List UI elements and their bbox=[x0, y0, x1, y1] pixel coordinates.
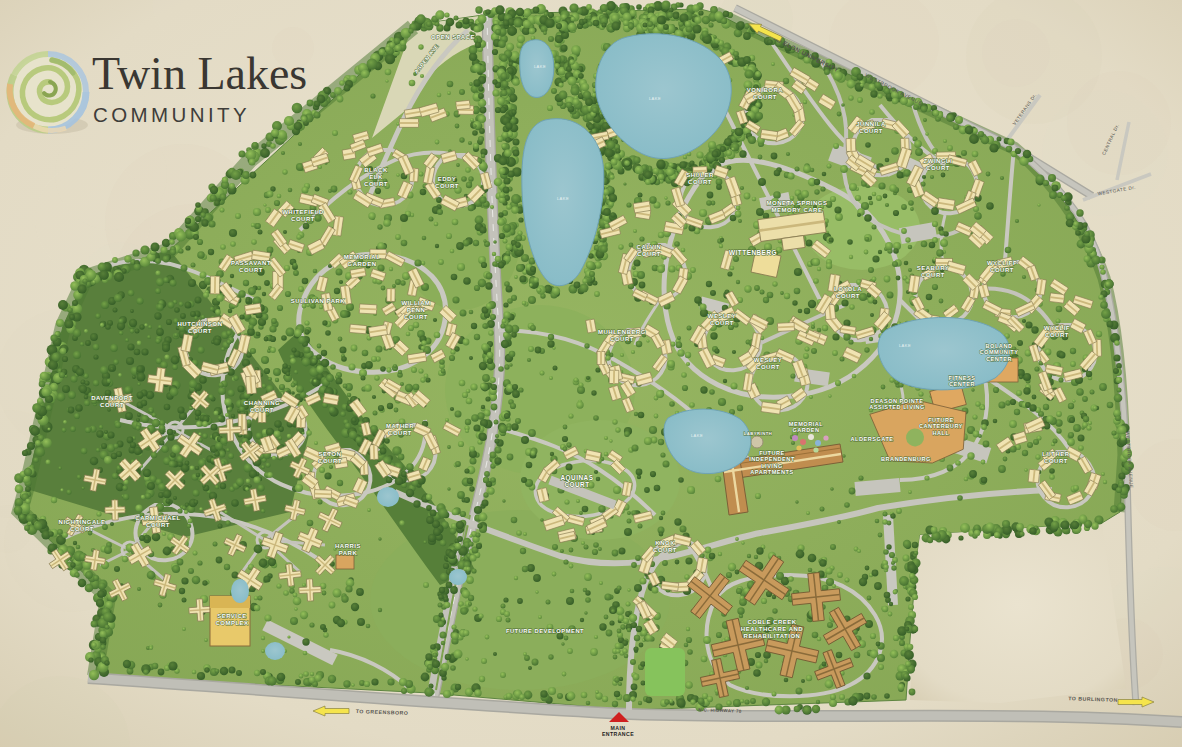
svg-text:Twin Lakes: Twin Lakes bbox=[92, 48, 307, 99]
svg-text:KNOXCOURT: KNOXCOURT bbox=[653, 540, 677, 553]
svg-text:EDDYCOURT: EDDYCOURT bbox=[435, 176, 459, 189]
svg-text:FITNESSCENTER: FITNESSCENTER bbox=[948, 375, 975, 387]
svg-text:MONETA SPRINGSMEMORY CARE: MONETA SPRINGSMEMORY CARE bbox=[766, 200, 827, 213]
svg-text:MEMORIALGARDEN: MEMORIALGARDEN bbox=[344, 254, 381, 267]
svg-text:COBLE CREEKHEALTHCARE ANDREHAB: COBLE CREEKHEALTHCARE ANDREHABILITATION bbox=[741, 619, 803, 639]
svg-text:LAKE: LAKE bbox=[899, 343, 911, 348]
svg-text:BRANDENBURG: BRANDENBURG bbox=[881, 456, 931, 462]
svg-text:COMMUNITY: COMMUNITY bbox=[93, 103, 250, 126]
svg-text:SERVICECOMPLEX: SERVICECOMPLEX bbox=[215, 613, 248, 626]
svg-text:WESLEYCOURT: WESLEYCOURT bbox=[754, 357, 782, 370]
svg-text:CALVINCOURT: CALVINCOURT bbox=[637, 244, 662, 257]
svg-text:WESLEYCOURT: WESLEYCOURT bbox=[708, 313, 736, 326]
svg-text:LUTHERCOURT: LUTHERCOURT bbox=[1042, 451, 1069, 464]
svg-text:WYCLIFCOURT: WYCLIFCOURT bbox=[1044, 325, 1070, 338]
svg-text:SEABURYCOURT: SEABURYCOURT bbox=[917, 265, 950, 278]
svg-text:LOYOLACOURT: LOYOLACOURT bbox=[834, 286, 862, 299]
svg-text:LAKE: LAKE bbox=[649, 96, 661, 101]
svg-text:SHULERCOURT: SHULERCOURT bbox=[686, 172, 714, 185]
svg-text:SETONCOURT: SETONCOURT bbox=[318, 451, 342, 464]
svg-text:SULLIVAN PARK: SULLIVAN PARK bbox=[291, 298, 345, 304]
svg-text:FUTURE DEVELOPMENT: FUTURE DEVELOPMENT bbox=[506, 628, 584, 634]
svg-text:LAKE: LAKE bbox=[691, 433, 703, 438]
svg-text:DEASON POINTEASSISTED LIVING: DEASON POINTEASSISTED LIVING bbox=[869, 398, 925, 410]
svg-text:LABYRINTH: LABYRINTH bbox=[744, 431, 773, 436]
svg-text:LAKE: LAKE bbox=[557, 196, 569, 201]
svg-text:MEMORIALGARDEN: MEMORIALGARDEN bbox=[789, 421, 824, 433]
svg-text:OPEN SPACE: OPEN SPACE bbox=[431, 34, 475, 40]
svg-text:JUNNILACOURT: JUNNILACOURT bbox=[856, 121, 886, 134]
svg-text:ALDERSGATE: ALDERSGATE bbox=[850, 436, 893, 442]
svg-text:MATHERCOURT: MATHERCOURT bbox=[386, 423, 414, 436]
svg-text:AQUINASCOURT: AQUINASCOURT bbox=[561, 474, 594, 488]
svg-text:WITTENBERG: WITTENBERG bbox=[729, 249, 777, 256]
svg-text:WYCLIFFCOURT: WYCLIFFCOURT bbox=[987, 260, 1017, 273]
svg-text:LAKE: LAKE bbox=[534, 64, 546, 69]
svg-text:HARRISPARK: HARRISPARK bbox=[335, 543, 361, 556]
svg-text:ZWINGLICOURT: ZWINGLICOURT bbox=[924, 158, 953, 171]
